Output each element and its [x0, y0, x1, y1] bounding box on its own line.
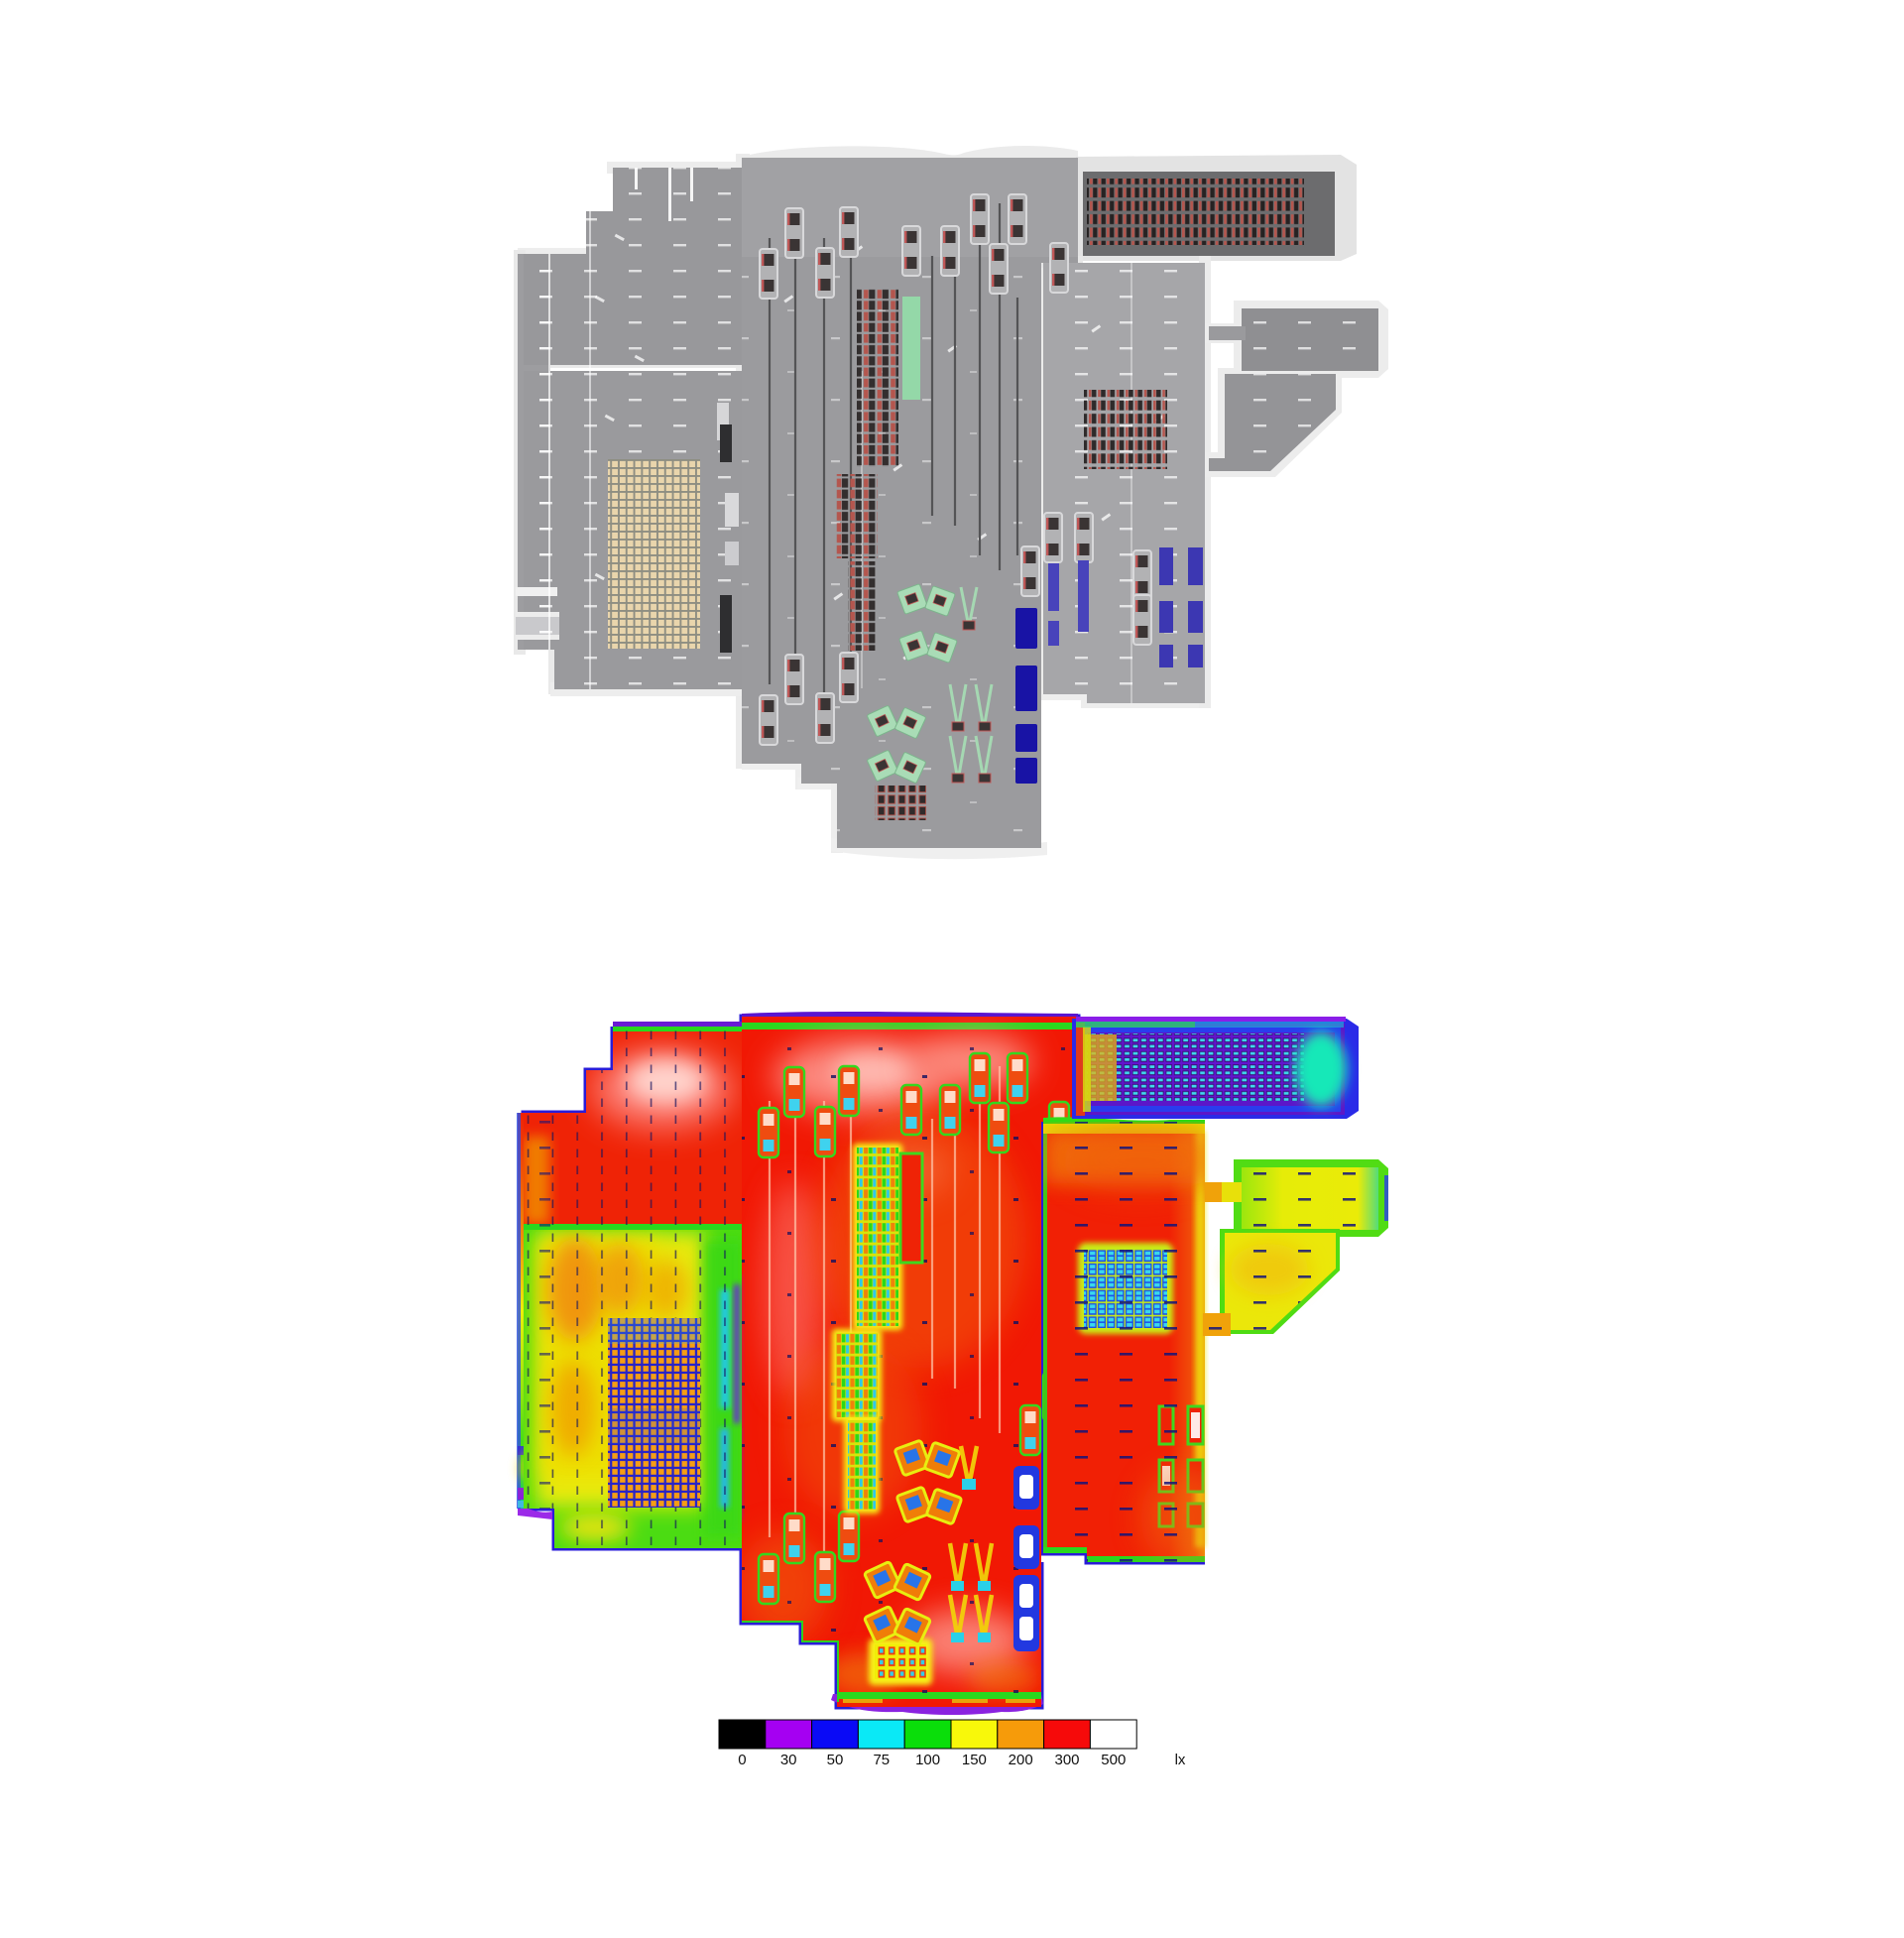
svg-text:200: 200	[1009, 1752, 1033, 1768]
svg-text:lx: lx	[1175, 1752, 1186, 1768]
svg-text:0: 0	[738, 1752, 746, 1768]
svg-text:30: 30	[780, 1752, 797, 1768]
svg-text:75: 75	[873, 1752, 890, 1768]
svg-text:50: 50	[827, 1752, 844, 1768]
svg-text:300: 300	[1054, 1752, 1079, 1768]
svg-text:500: 500	[1101, 1752, 1126, 1768]
svg-text:150: 150	[962, 1752, 987, 1768]
svg-text:100: 100	[915, 1752, 940, 1768]
